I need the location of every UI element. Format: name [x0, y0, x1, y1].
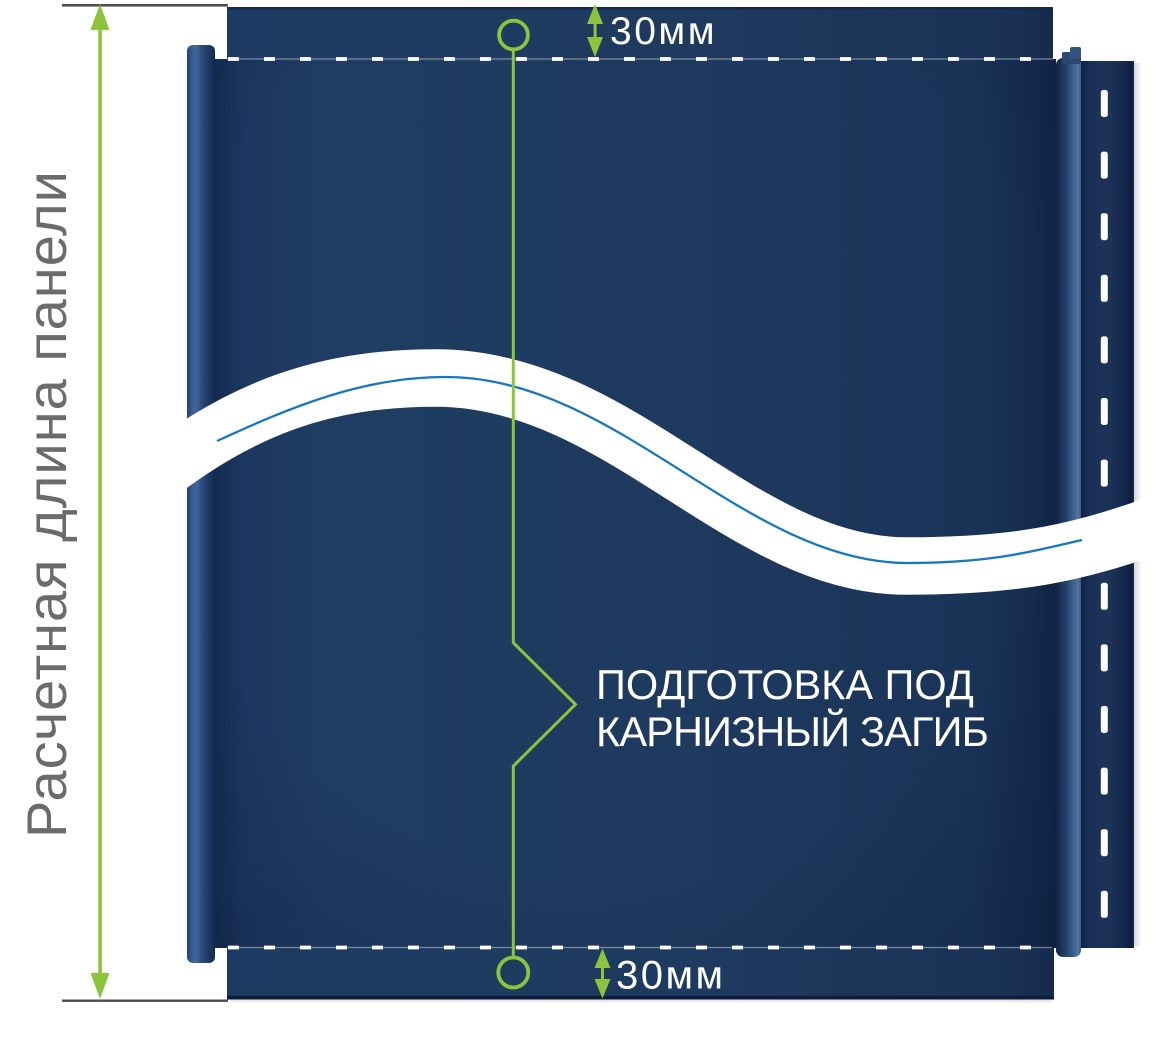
svg-text:КАРНИЗНЫЙ ЗАГИБ: КАРНИЗНЫЙ ЗАГИБ: [596, 708, 988, 755]
svg-text:Расчетная длина панели: Расчетная длина панели: [15, 170, 78, 838]
svg-text:30мм: 30мм: [616, 954, 726, 998]
svg-text:ПОДГОТОВКА ПОД: ПОДГОТОВКА ПОД: [596, 661, 974, 708]
svg-text:30мм: 30мм: [610, 10, 717, 53]
